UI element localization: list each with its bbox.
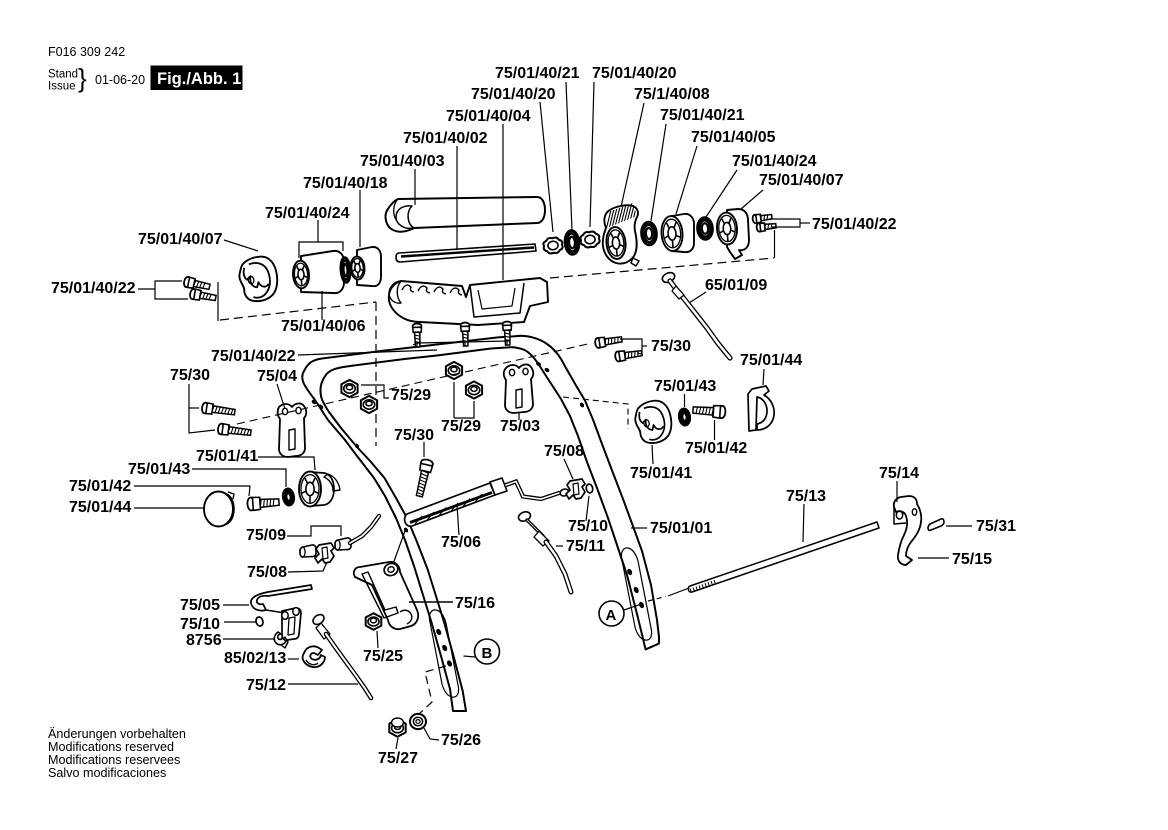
svg-text:75/01/40/04: 75/01/40/04 (446, 108, 531, 125)
svg-text:65/01/09: 65/01/09 (705, 277, 767, 294)
svg-text:75/08: 75/08 (247, 564, 287, 581)
svg-text:75/13: 75/13 (786, 488, 826, 505)
svg-text:75/01/01: 75/01/01 (650, 520, 712, 537)
svg-text:75/01/40/07: 75/01/40/07 (759, 172, 844, 189)
svg-text:Änderungen vorbehalten: Änderungen vorbehalten (48, 727, 186, 741)
svg-text:75/15: 75/15 (952, 551, 992, 568)
svg-text:75/30: 75/30 (651, 338, 691, 355)
svg-text:75/01/40/03: 75/01/40/03 (360, 153, 445, 170)
svg-text:75/01/40/18: 75/01/40/18 (303, 175, 388, 192)
svg-text:75/01/43: 75/01/43 (128, 461, 190, 478)
svg-text:8756: 8756 (186, 632, 222, 649)
svg-text:Fig./Abb. 1: Fig./Abb. 1 (157, 70, 241, 88)
svg-text:75/01/43: 75/01/43 (654, 378, 716, 395)
svg-text:75/04: 75/04 (257, 368, 297, 385)
svg-text:75/01/44: 75/01/44 (69, 499, 131, 516)
svg-text:75/01/40/21: 75/01/40/21 (660, 107, 745, 124)
svg-text:75/29: 75/29 (391, 387, 431, 404)
svg-text:A: A (606, 607, 617, 624)
svg-text:}: } (78, 63, 87, 93)
svg-text:75/01/40/24: 75/01/40/24 (732, 153, 817, 170)
svg-text:B: B (482, 645, 493, 662)
svg-text:Stand: Stand (48, 69, 78, 81)
svg-text:75/01/40/24: 75/01/40/24 (265, 205, 350, 222)
svg-text:75/1/40/08: 75/1/40/08 (634, 86, 710, 103)
svg-text:75/30: 75/30 (394, 427, 434, 444)
svg-text:75/14: 75/14 (879, 465, 919, 482)
svg-text:75/30: 75/30 (170, 367, 210, 384)
svg-text:75/01/40/20: 75/01/40/20 (592, 65, 677, 82)
svg-text:75/16: 75/16 (455, 595, 495, 612)
svg-text:Modifications reserved: Modifications reserved (48, 740, 174, 754)
svg-text:75/08: 75/08 (544, 443, 584, 460)
svg-text:75/01/42: 75/01/42 (685, 440, 747, 457)
svg-text:75/01/42: 75/01/42 (69, 478, 131, 495)
svg-text:75/01/41: 75/01/41 (630, 465, 692, 482)
svg-text:75/01/40/20: 75/01/40/20 (471, 86, 556, 103)
svg-text:75/01/40/22: 75/01/40/22 (812, 216, 897, 233)
svg-text:75/01/40/06: 75/01/40/06 (281, 318, 366, 335)
svg-text:F016 309 242: F016 309 242 (48, 45, 125, 59)
svg-text:75/10: 75/10 (568, 518, 608, 535)
svg-text:75/11: 75/11 (566, 538, 605, 555)
svg-text:75/09: 75/09 (246, 527, 286, 544)
svg-text:75/29: 75/29 (441, 418, 481, 435)
svg-text:75/01/40/07: 75/01/40/07 (138, 231, 223, 248)
svg-text:75/01/40/22: 75/01/40/22 (211, 348, 296, 365)
svg-text:75/12: 75/12 (246, 677, 286, 694)
svg-text:75/26: 75/26 (441, 732, 481, 749)
svg-text:75/01/40/21: 75/01/40/21 (495, 65, 580, 82)
svg-text:75/06: 75/06 (441, 534, 481, 551)
svg-text:75/01/40/02: 75/01/40/02 (403, 130, 488, 147)
svg-text:85/02/13: 85/02/13 (224, 650, 286, 667)
svg-text:75/05: 75/05 (180, 597, 220, 614)
svg-text:75/25: 75/25 (363, 648, 403, 665)
svg-text:75/01/44: 75/01/44 (740, 352, 802, 369)
svg-text:75/10: 75/10 (180, 616, 220, 633)
svg-text:75/03: 75/03 (500, 418, 540, 435)
svg-text:75/27: 75/27 (378, 750, 418, 767)
svg-text:Issue: Issue (48, 81, 76, 93)
svg-text:75/01/40/05: 75/01/40/05 (691, 129, 776, 146)
svg-text:75/01/41: 75/01/41 (196, 448, 258, 465)
svg-text:Modifications reservees: Modifications reservees (48, 753, 180, 767)
svg-text:01-06-20: 01-06-20 (95, 73, 145, 87)
svg-text:Salvo modificaciones: Salvo modificaciones (48, 766, 166, 780)
svg-text:75/01/40/22: 75/01/40/22 (51, 280, 136, 297)
svg-text:75/31: 75/31 (976, 518, 1016, 535)
